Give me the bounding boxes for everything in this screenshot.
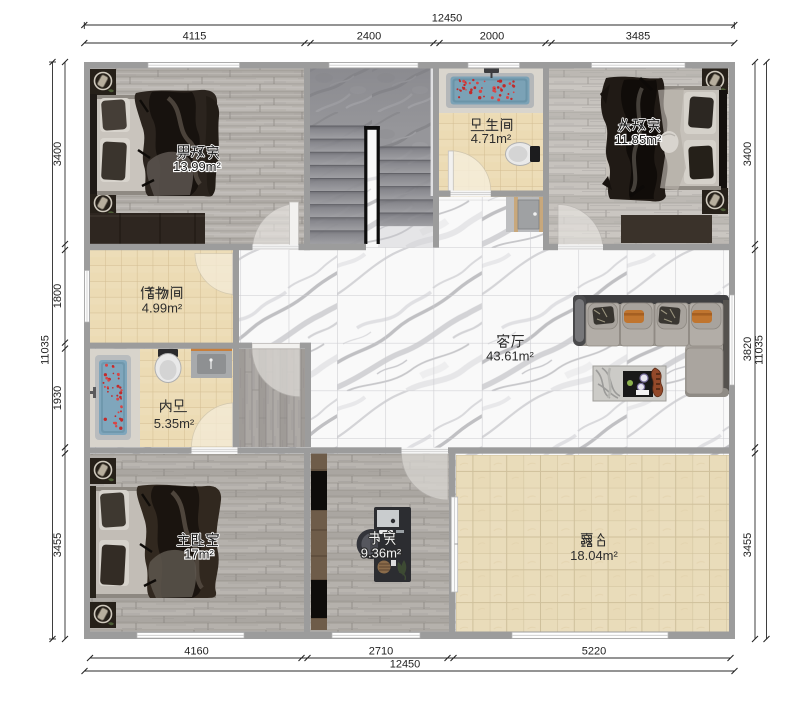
svg-text:2400: 2400 (357, 31, 381, 43)
svg-text:11035: 11035 (754, 335, 766, 365)
svg-text:3455: 3455 (742, 533, 754, 557)
svg-text:11.85m²: 11.85m² (615, 132, 662, 147)
svg-text:5220: 5220 (582, 646, 606, 658)
svg-text:1930: 1930 (52, 386, 64, 410)
svg-text:5.35m²: 5.35m² (154, 416, 195, 431)
svg-text:18.04m²: 18.04m² (570, 548, 618, 563)
svg-text:3455: 3455 (52, 533, 64, 557)
svg-text:17m²: 17m² (184, 547, 214, 562)
svg-text:13.99m²: 13.99m² (173, 159, 221, 174)
svg-text:3400: 3400 (742, 142, 754, 166)
svg-text:4115: 4115 (183, 31, 207, 43)
svg-text:4.99m²: 4.99m² (142, 301, 183, 316)
svg-text:9.36m²: 9.36m² (361, 546, 402, 561)
svg-text:11035: 11035 (40, 335, 52, 365)
svg-text:3820: 3820 (742, 337, 754, 361)
svg-text:12450: 12450 (390, 659, 421, 671)
svg-text:43.61m²: 43.61m² (486, 349, 534, 364)
svg-text:2000: 2000 (480, 31, 504, 43)
svg-text:12450: 12450 (432, 13, 463, 25)
svg-text:4160: 4160 (184, 646, 208, 658)
svg-text:4.71m²: 4.71m² (471, 131, 512, 146)
svg-text:1800: 1800 (52, 284, 64, 308)
svg-text:2710: 2710 (369, 646, 393, 658)
svg-text:3400: 3400 (52, 142, 64, 166)
svg-text:3485: 3485 (626, 31, 650, 43)
